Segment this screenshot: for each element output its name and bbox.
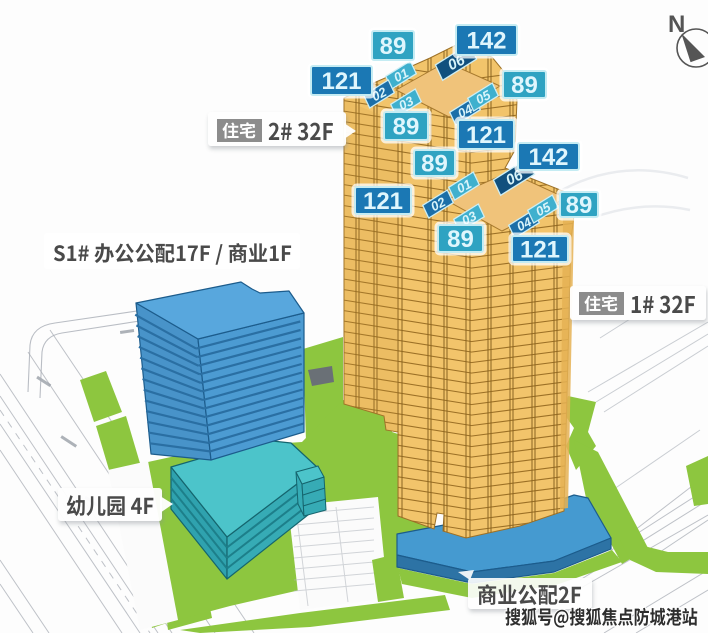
svg-text:89: 89 [380,33,407,60]
svg-text:89: 89 [566,192,593,219]
svg-text:89: 89 [421,150,448,177]
svg-text:142: 142 [466,27,506,54]
svg-text:121: 121 [363,188,403,215]
svg-text:121: 121 [321,68,361,95]
svg-text:142: 142 [528,144,568,171]
svg-text:121: 121 [520,236,560,263]
svg-text:89: 89 [447,226,474,253]
svg-text:89: 89 [511,72,538,99]
svg-text:89: 89 [393,113,420,140]
svg-text:121: 121 [466,122,506,149]
